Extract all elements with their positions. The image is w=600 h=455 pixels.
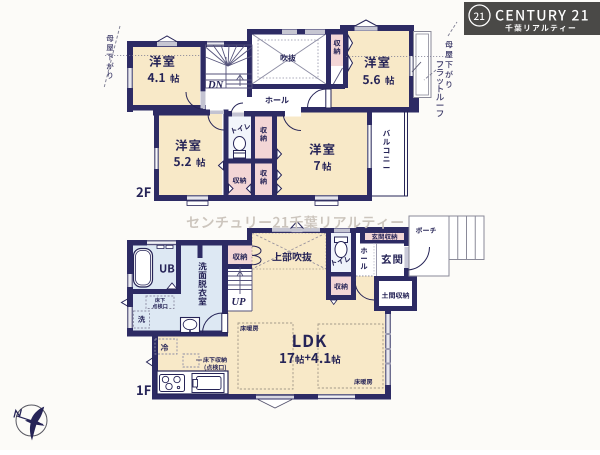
svg-text:UP: UP (232, 297, 247, 308)
svg-text:DN: DN (207, 80, 224, 91)
